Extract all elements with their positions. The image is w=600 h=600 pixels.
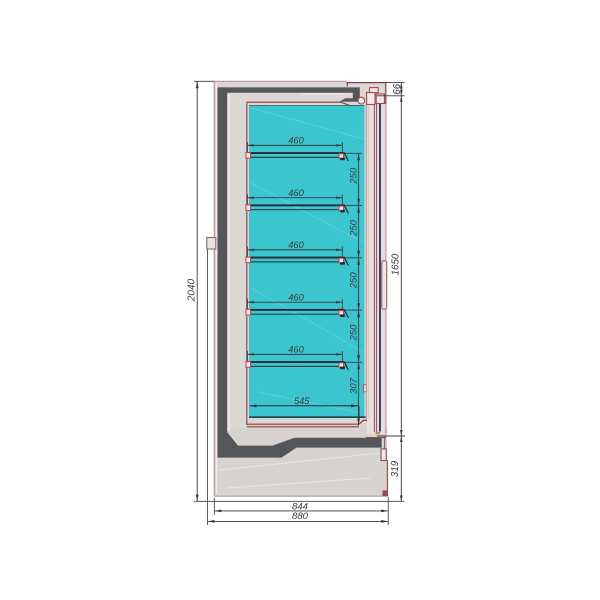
svg-text:307: 307 bbox=[349, 377, 360, 394]
svg-text:460: 460 bbox=[288, 240, 304, 250]
svg-text:66: 66 bbox=[392, 83, 403, 94]
svg-text:319: 319 bbox=[390, 460, 401, 477]
svg-text:460: 460 bbox=[288, 188, 304, 198]
svg-text:460: 460 bbox=[288, 292, 304, 302]
svg-text:2040: 2040 bbox=[187, 278, 198, 302]
svg-text:460: 460 bbox=[288, 136, 304, 146]
svg-text:545: 545 bbox=[294, 396, 310, 406]
svg-text:460: 460 bbox=[288, 345, 304, 355]
svg-text:250: 250 bbox=[349, 219, 360, 237]
svg-text:1650: 1650 bbox=[390, 253, 401, 275]
svg-text:250: 250 bbox=[349, 324, 360, 342]
svg-text:250: 250 bbox=[349, 167, 360, 185]
svg-text:250: 250 bbox=[349, 272, 360, 290]
svg-text:880: 880 bbox=[292, 511, 309, 522]
